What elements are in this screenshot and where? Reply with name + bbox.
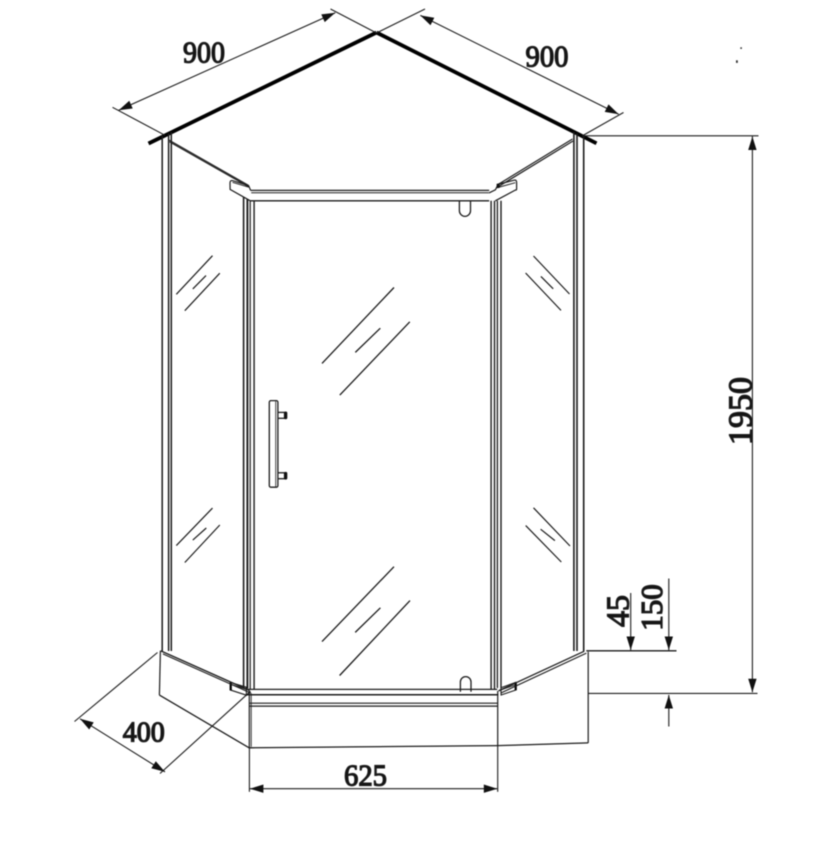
svg-text:900: 900 <box>526 39 569 74</box>
svg-text:45: 45 <box>600 595 636 627</box>
svg-text:400: 400 <box>123 717 165 748</box>
svg-text:900: 900 <box>183 35 225 70</box>
svg-text:625: 625 <box>344 758 387 793</box>
svg-text:150: 150 <box>634 584 669 631</box>
svg-text:1950: 1950 <box>723 377 760 445</box>
